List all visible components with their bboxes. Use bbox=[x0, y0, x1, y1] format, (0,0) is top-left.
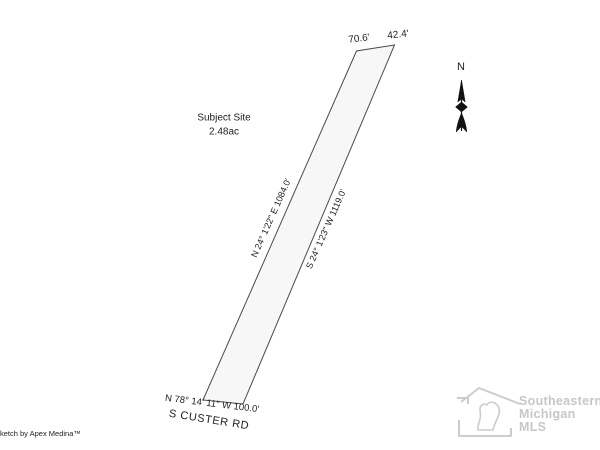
sketch-drawing-layer bbox=[0, 0, 600, 450]
plat-sketch-canvas: 70.6' 42.4' Subject Site 2.48ac .site{tr… bbox=[0, 0, 600, 450]
north-arrow-icon bbox=[456, 80, 468, 132]
watermark-line-2: Michigan bbox=[519, 407, 576, 421]
top-right-dimension: 42.4' bbox=[387, 28, 409, 41]
sketch-credit: Sketch by Apex Medina™ bbox=[0, 429, 81, 438]
watermark-line-3: MLS bbox=[519, 420, 546, 434]
subject-site-label: Subject Site bbox=[197, 113, 250, 124]
subject-site-area: 2.48ac bbox=[209, 126, 239, 137]
mls-house-icon bbox=[457, 388, 520, 436]
parcel-polygon bbox=[203, 45, 395, 404]
watermark-line-1: Southeastern bbox=[519, 394, 600, 408]
compass-north-label: N bbox=[457, 61, 465, 73]
